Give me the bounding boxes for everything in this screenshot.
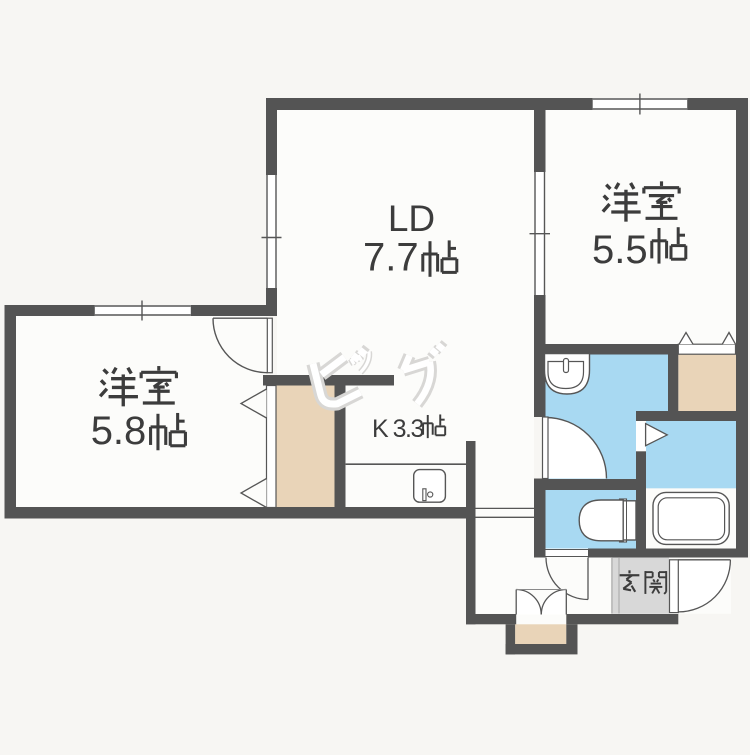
svg-text:5.8: 5.8 <box>91 409 147 453</box>
svg-text:7.7: 7.7 <box>363 236 419 280</box>
svg-text:K 3.3: K 3.3 <box>372 415 423 443</box>
svg-text:5.5: 5.5 <box>592 228 648 272</box>
svg-text:LD: LD <box>388 198 435 239</box>
